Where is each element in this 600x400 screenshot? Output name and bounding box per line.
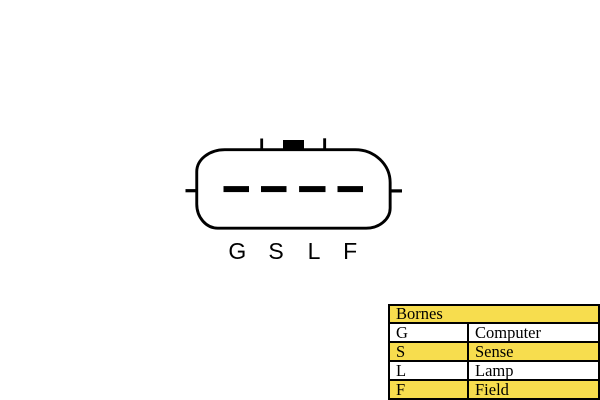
svg-text:F: F [343, 238, 357, 264]
svg-text:L: L [308, 238, 321, 264]
svg-text:S: S [268, 238, 283, 264]
svg-text:G: G [228, 238, 246, 264]
